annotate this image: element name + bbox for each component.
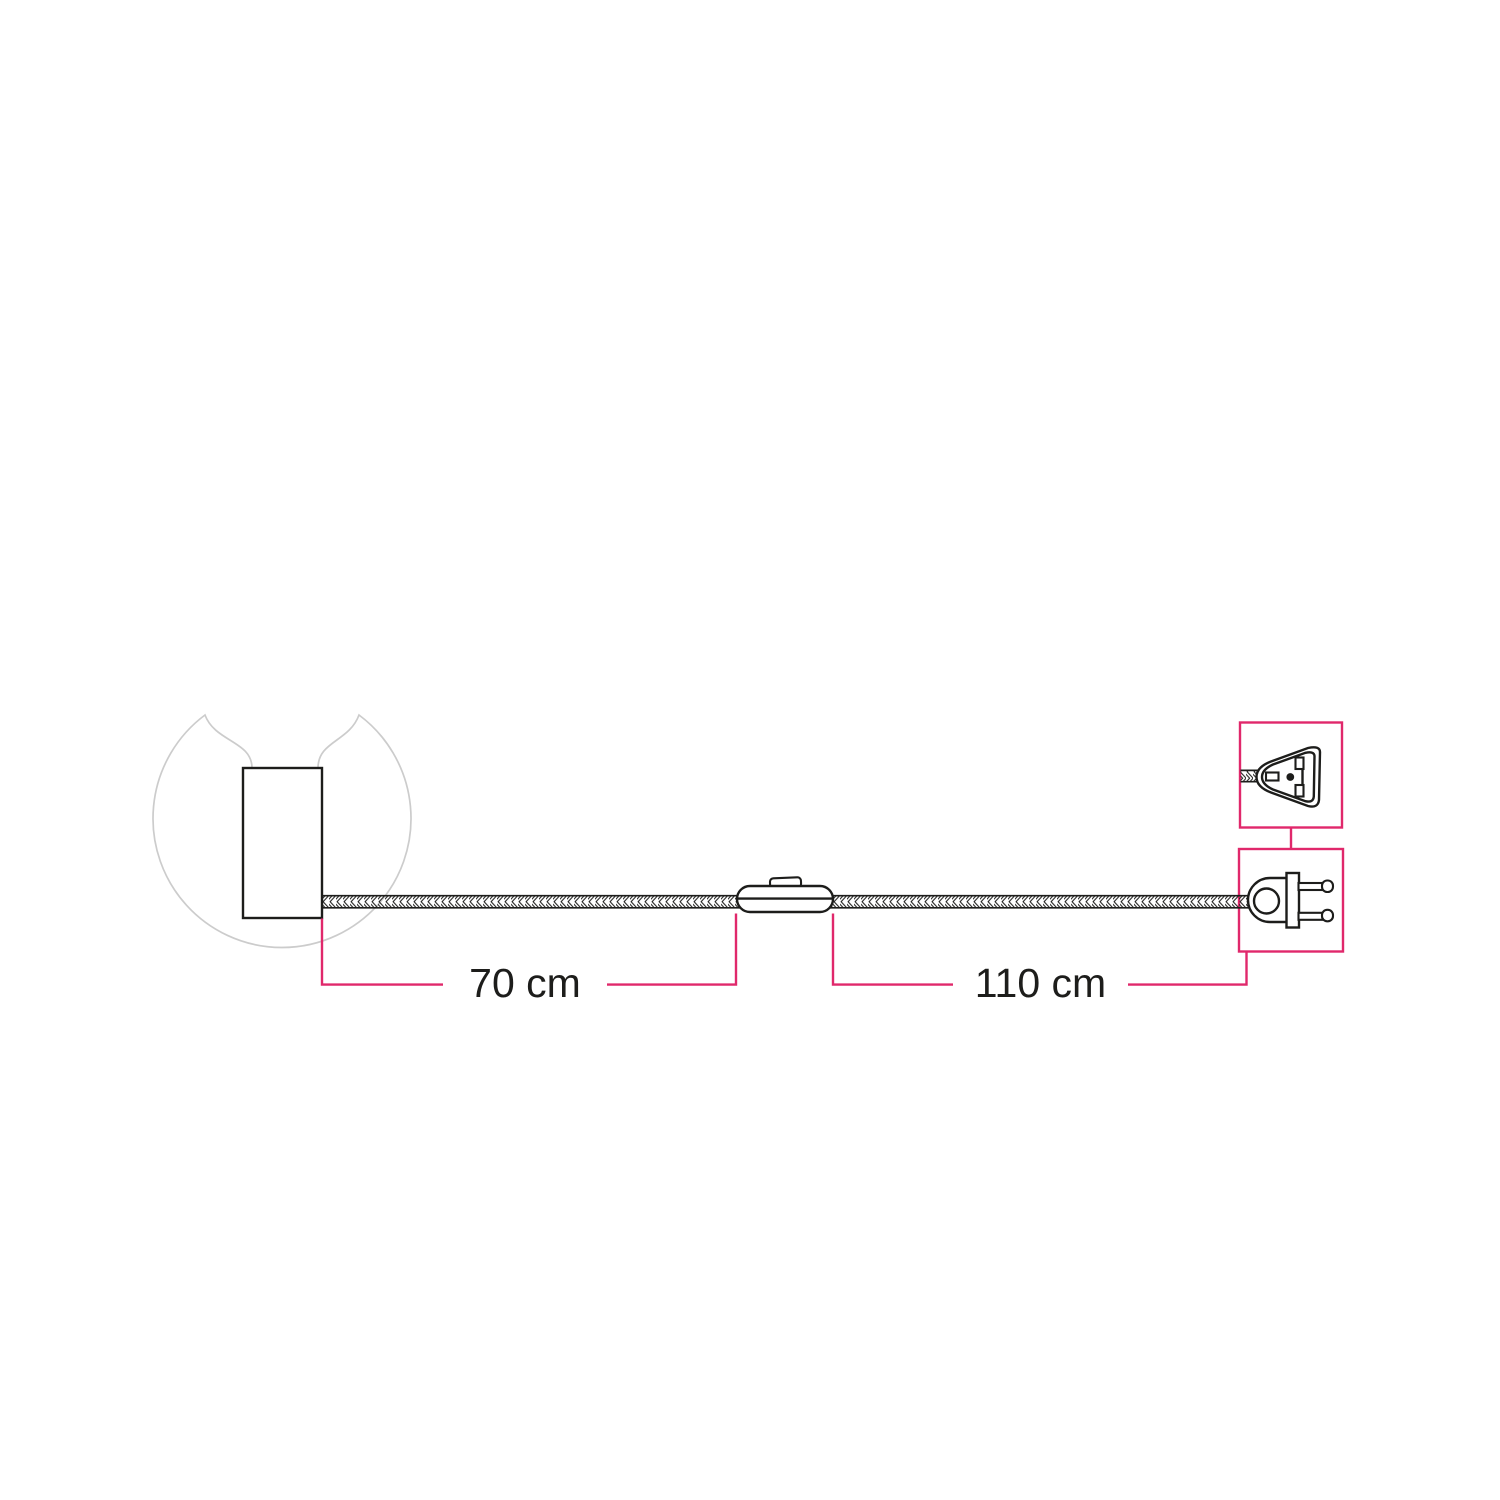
lamp-dimension-diagram-canvas: 70 cm 110 cm — [0, 0, 1500, 1500]
dimension-110-left-segment — [833, 914, 953, 985]
dimension-70-left-segment — [322, 919, 443, 985]
inline-switch — [737, 877, 833, 912]
dimension-110-right-segment — [1128, 952, 1247, 985]
europlug-front-icon — [1257, 747, 1321, 806]
lamp-holder — [243, 768, 322, 918]
dimension-110-label: 110 cm — [954, 962, 1127, 1005]
lamp-dimension-diagram — [0, 0, 1500, 1500]
dimension-70-right-segment — [607, 914, 736, 985]
dimension-70-label: 70 cm — [440, 962, 610, 1005]
europlug-side-icon — [1248, 873, 1333, 928]
